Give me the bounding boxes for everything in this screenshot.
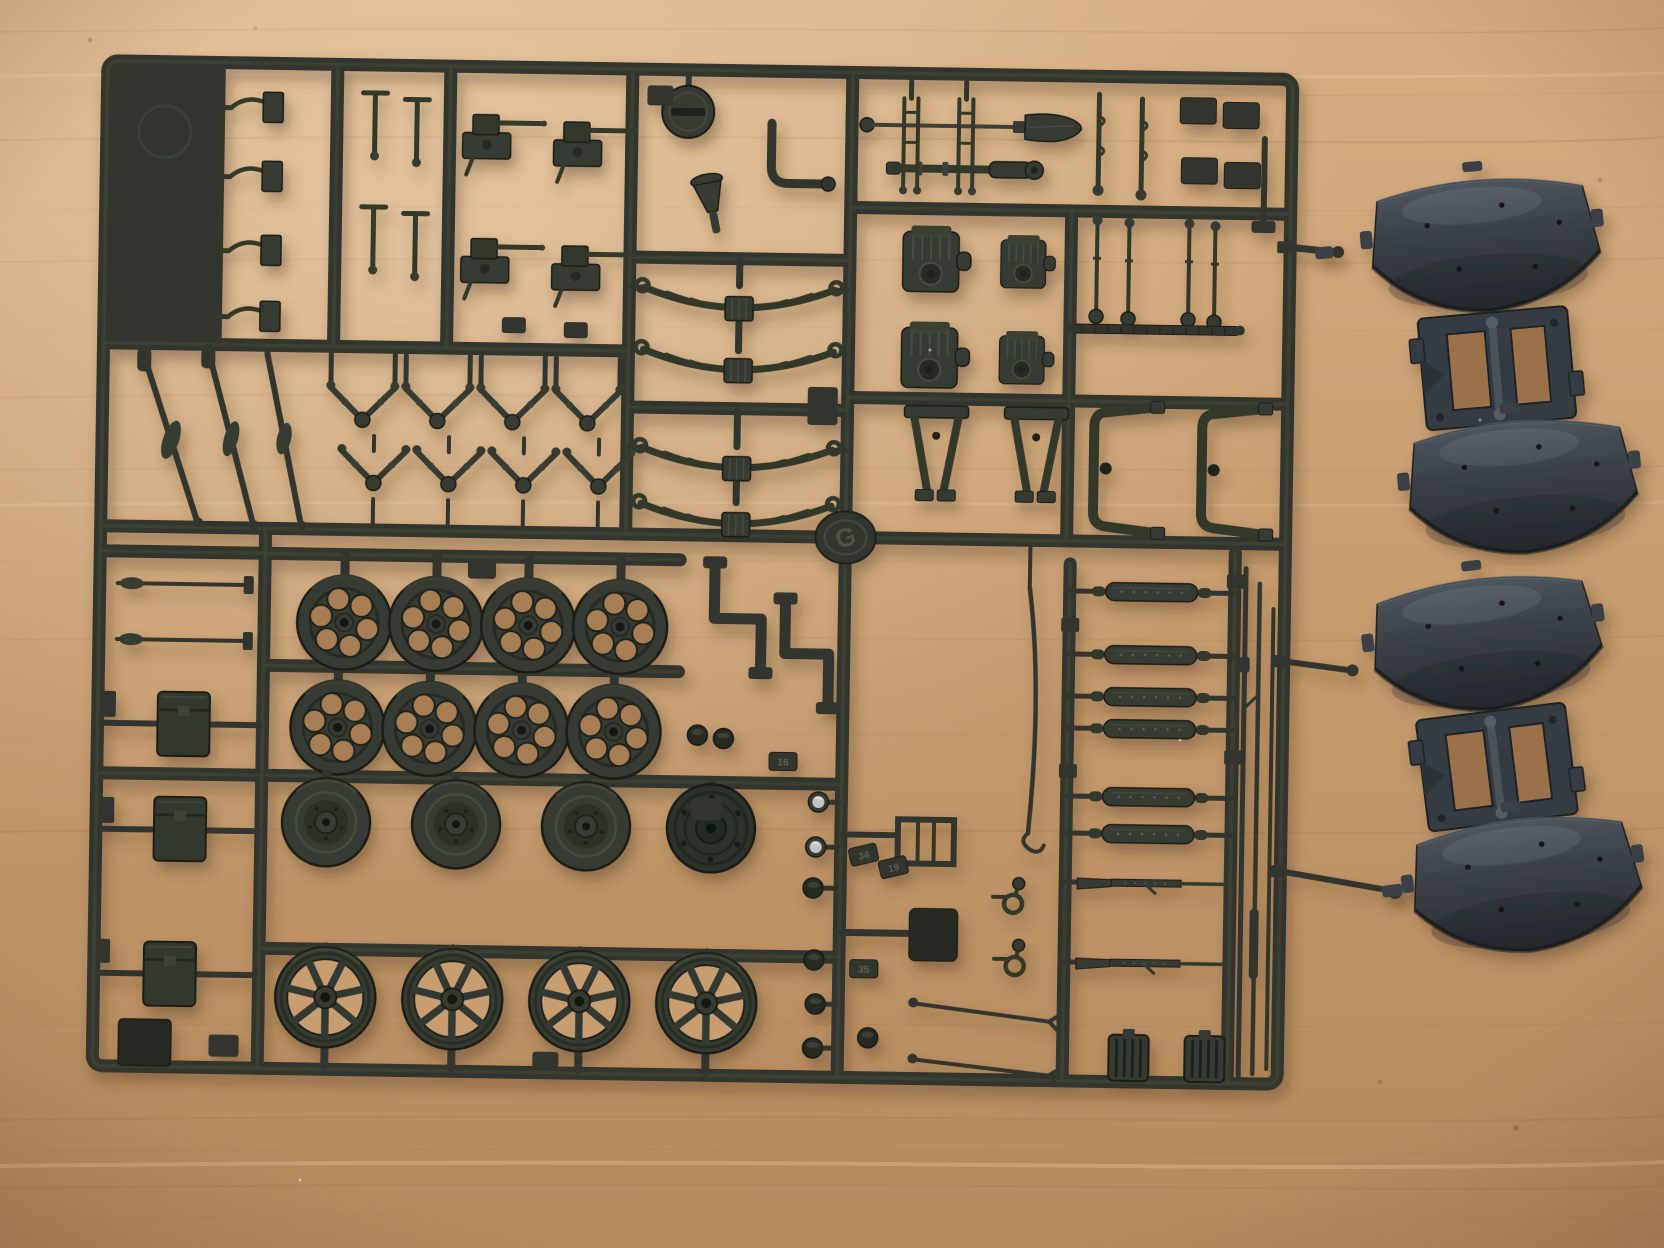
photo-stage: 16 34 19 35: [0, 0, 1664, 1248]
scene-svg: 16 34 19 35: [0, 0, 1664, 1248]
vignette: [0, 0, 1664, 1248]
